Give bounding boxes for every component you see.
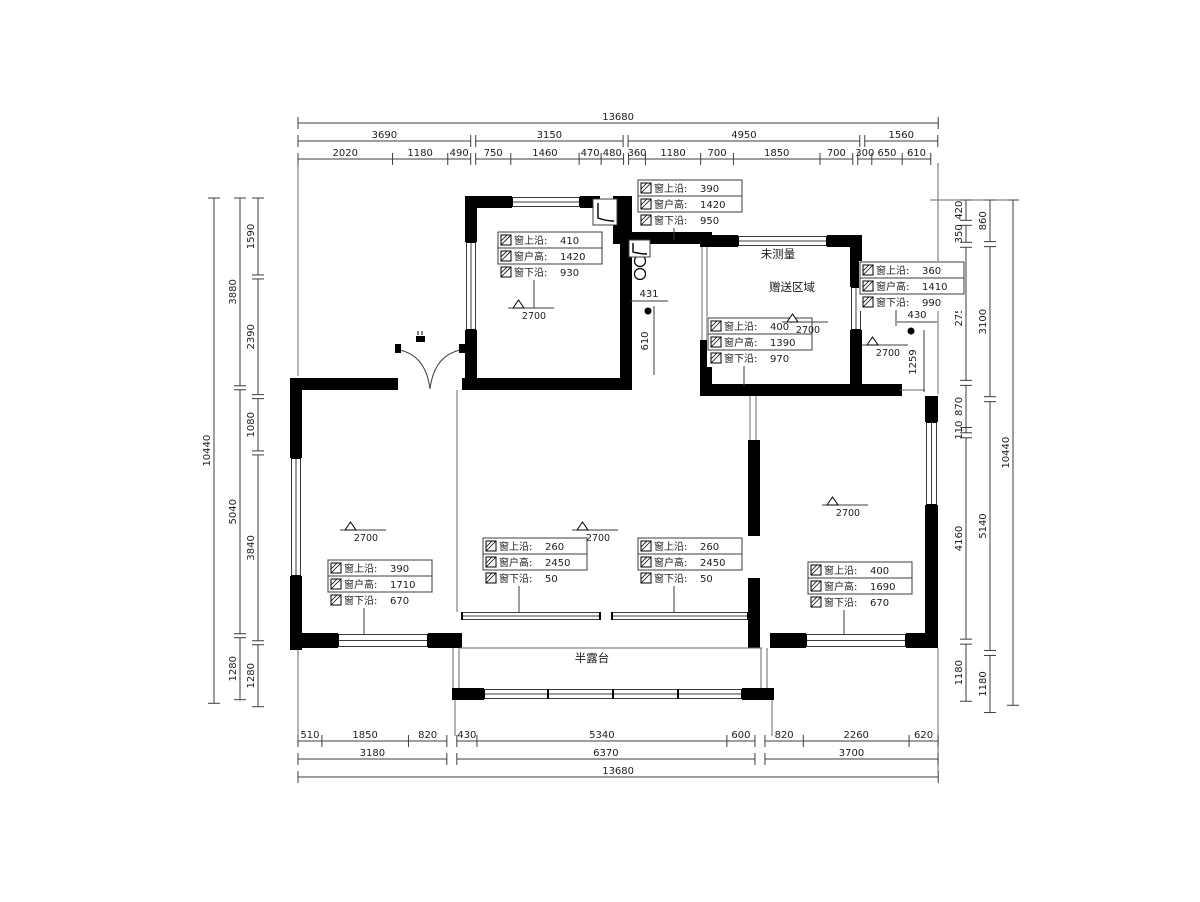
dimension-label: 1180 <box>660 148 685 159</box>
dimension-label: 5040 <box>228 499 239 524</box>
misc-dimension-label: 610 <box>640 331 651 350</box>
dimension-label: 600 <box>731 730 750 741</box>
annotation-label: 窗户高: <box>654 198 687 211</box>
wall-segment <box>700 384 862 396</box>
height-marker-triangle-icon <box>513 300 524 308</box>
window-annotation-win-left-room: 窗上沿: 390窗户高: 1710窗下沿: 670 <box>327 559 433 634</box>
annotation-value: 260 <box>545 542 564 553</box>
height-marker-value: 2700 <box>836 508 860 519</box>
annotation-label: 窗下沿: <box>344 594 377 607</box>
dimension-chain-top: 1368036903150495015602020118049075014604… <box>298 112 938 165</box>
dimension-chain-left: 1044038805040128015902390108038401280 <box>202 198 264 707</box>
dimension-label: 350 <box>954 224 965 243</box>
annotation-label: 窗上沿: <box>824 564 857 577</box>
annotation-value: 50 <box>700 574 713 585</box>
dimension-label: 490 <box>450 148 469 159</box>
dimension-label: 820 <box>775 730 794 741</box>
dimension-label: 1080 <box>246 412 257 437</box>
dimension-label: 3880 <box>228 279 239 304</box>
misc-dimension-label: 431 <box>639 289 658 300</box>
dimension-label: 3100 <box>978 309 989 334</box>
window-band <box>291 458 301 576</box>
annotation-label: 窗户高: <box>344 578 377 591</box>
dimension-label: 1560 <box>889 130 914 141</box>
height-marker-value: 2700 <box>796 325 820 336</box>
annotation-label: 窗上沿: <box>724 320 757 333</box>
wall-segment <box>290 378 302 458</box>
annotation-value: 1410 <box>922 282 947 293</box>
door-leaf <box>395 344 401 353</box>
dimension-label: 6370 <box>593 748 618 759</box>
height-marker: 2700 <box>508 300 554 322</box>
annotation-label: 窗上沿: <box>876 264 909 277</box>
dimension-label: 1180 <box>407 148 432 159</box>
annotation-value: 970 <box>770 354 789 365</box>
annotation-bg <box>327 559 433 609</box>
dimension-label: 420 <box>954 201 965 220</box>
window-band <box>612 612 748 620</box>
dimension-label: 10440 <box>1001 437 1012 469</box>
dimension-label: 4160 <box>954 526 965 551</box>
door-closer-icon <box>416 336 425 342</box>
window-annotation-win-room-a: 窗上沿: 410窗户高: 1420窗下沿: 930 <box>497 231 603 308</box>
wall-segment <box>700 235 738 247</box>
dimension-label: 700 <box>707 148 726 159</box>
dimension-label: 2260 <box>843 730 868 741</box>
dimension-label: 3150 <box>537 130 562 141</box>
dimension-label: 2390 <box>246 324 257 349</box>
wall-segment <box>613 232 712 244</box>
annotation-label: 窗上沿: <box>514 234 547 247</box>
wall-segment <box>465 196 477 242</box>
height-marker-value: 2700 <box>522 311 546 322</box>
annotation-bg <box>637 537 743 587</box>
window-band <box>338 634 428 647</box>
window-band <box>462 612 600 620</box>
height-marker: 2700 <box>862 337 908 359</box>
dimension-label: 1180 <box>954 660 965 685</box>
annotation-label: 窗户高: <box>724 336 757 349</box>
wall-segment <box>620 244 632 378</box>
dimension-label: 1850 <box>764 148 789 159</box>
annotation-label: 窗上沿: <box>499 540 532 553</box>
annotation-value: 930 <box>560 268 579 279</box>
annotation-bg <box>482 537 588 587</box>
window-annotation-win-right-room: 窗上沿: 400窗户高: 1690窗下沿: 670 <box>807 561 913 634</box>
door-leaf <box>459 344 465 353</box>
window-band <box>806 634 906 647</box>
annotation-label: 窗户高: <box>499 556 532 569</box>
dimension-label: 1280 <box>228 656 239 681</box>
wall-segment <box>462 378 632 390</box>
floor-plan-page: 1368036903150495015602020118049075014604… <box>0 0 1200 902</box>
wall-segment <box>290 633 338 648</box>
annotation-bg <box>859 261 965 311</box>
floor-plan-drawing: 1368036903150495015602020118049075014604… <box>0 0 1200 902</box>
height-marker-value: 2700 <box>876 348 900 359</box>
walls-and-openings <box>290 163 1016 772</box>
height-marker-value: 2700 <box>586 533 610 544</box>
annotation-label: 窗上沿: <box>344 562 377 575</box>
annotation-label: 窗下沿: <box>499 572 532 585</box>
height-marker-triangle-icon <box>867 337 878 345</box>
dimension-label: 13680 <box>602 766 634 777</box>
dimension-label: 3700 <box>839 748 864 759</box>
room-label: 未测量 <box>761 247 796 261</box>
annotation-bg <box>637 179 743 229</box>
dimension-label: 1180 <box>978 671 989 696</box>
height-marker-triangle-icon <box>577 522 588 530</box>
wall-segment <box>925 396 938 422</box>
window-band <box>484 689 742 699</box>
dimension-label: 650 <box>877 148 896 159</box>
dimension-label: 10440 <box>202 435 213 467</box>
wall-segment <box>770 633 806 648</box>
leader-dot <box>908 328 915 335</box>
height-marker: 2700 <box>340 522 386 544</box>
wall-segment <box>748 578 760 648</box>
dimension-label: 700 <box>827 148 846 159</box>
annotation-label: 窗户高: <box>876 280 909 293</box>
entry-double-door <box>395 344 465 389</box>
annotation-value: 360 <box>922 266 941 277</box>
annotation-label: 窗下沿: <box>824 596 857 609</box>
dimension-label: 3840 <box>246 535 257 560</box>
dimension-label: 110 <box>954 421 965 440</box>
annotation-value: 950 <box>700 216 719 227</box>
annotation-value: 1710 <box>390 580 415 591</box>
pipe-circle-icon <box>635 269 646 280</box>
wall-segment <box>850 330 862 396</box>
annotation-value: 1390 <box>770 338 795 349</box>
door-swing-arc <box>430 350 460 389</box>
dimension-label: 820 <box>418 730 437 741</box>
annotation-value: 670 <box>390 596 409 607</box>
annotation-label: 窗下沿: <box>654 214 687 227</box>
annotation-label: 窗户高: <box>514 250 547 263</box>
annotation-label: 窗下沿: <box>876 296 909 309</box>
dimension-label: 1850 <box>352 730 377 741</box>
room-label: 赠送区域 <box>769 280 815 294</box>
annotation-label: 窗上沿: <box>654 182 687 195</box>
dimension-label: 13680 <box>602 112 634 123</box>
annotation-value: 410 <box>560 236 579 247</box>
annotation-value: 1420 <box>560 252 585 263</box>
annotation-value: 400 <box>870 566 889 577</box>
dimension-label: 750 <box>484 148 503 159</box>
leader-dot <box>645 308 652 315</box>
corner-bracket-icon <box>593 199 617 225</box>
window-band <box>738 236 827 246</box>
height-marker-triangle-icon <box>827 497 838 505</box>
annotation-value: 670 <box>870 598 889 609</box>
dimension-label: 510 <box>300 730 319 741</box>
door-swing-arc <box>400 350 430 389</box>
height-marker-triangle-icon <box>345 522 356 530</box>
misc-dimension-label: 430 <box>907 310 926 321</box>
dimension-label: 3690 <box>372 130 397 141</box>
annotation-value: 260 <box>700 542 719 553</box>
annotation-value: 390 <box>700 184 719 195</box>
annotation-label: 窗下沿: <box>724 352 757 365</box>
annotation-value: 990 <box>922 298 941 309</box>
dimension-label: 870 <box>954 397 965 416</box>
annotation-value: 2450 <box>700 558 725 569</box>
height-marker-value: 2700 <box>354 533 378 544</box>
wall-segment <box>906 633 938 648</box>
window-annotation-win-living-right: 窗上沿: 260窗户高: 2450窗下沿: 50 <box>637 537 743 612</box>
window-band <box>466 242 476 330</box>
annotation-value: 390 <box>390 564 409 575</box>
dimension-chain-bottom: 5101850820430534060082022606203180637037… <box>298 730 938 783</box>
dimension-label: 5140 <box>978 513 989 538</box>
annotation-bg <box>497 231 603 281</box>
annotation-label: 窗户高: <box>824 580 857 593</box>
wall-segment <box>452 688 484 700</box>
dimension-label: 430 <box>457 730 476 741</box>
annotation-value: 1690 <box>870 582 895 593</box>
dimension-label: 4950 <box>731 130 756 141</box>
wall-segment <box>748 440 760 536</box>
window-band <box>926 422 937 505</box>
window-band <box>512 197 580 207</box>
corner-bracket-icon <box>629 240 650 257</box>
annotation-label: 窗上沿: <box>654 540 687 553</box>
annotation-label: 窗下沿: <box>514 266 547 279</box>
annotation-bg <box>807 561 913 611</box>
dimension-label: 610 <box>907 148 926 159</box>
dimension-label: 2020 <box>333 148 358 159</box>
dimension-label: 5340 <box>589 730 614 741</box>
annotation-label: 窗户高: <box>654 556 687 569</box>
wall-segment <box>302 378 398 390</box>
wall-segment <box>862 384 902 396</box>
room-label: 半露台 <box>575 651 610 665</box>
annotation-value: 1420 <box>700 200 725 211</box>
dimension-label: 1590 <box>246 224 257 249</box>
annotation-value: 50 <box>545 574 558 585</box>
dimension-label: 1460 <box>532 148 557 159</box>
height-marker: 2700 <box>822 497 868 519</box>
dimension-label: 860 <box>978 211 989 230</box>
misc-dimension-label: 1259 <box>908 349 919 374</box>
window-annotation-win-living-left: 窗上沿: 260窗户高: 2450窗下沿: 50 <box>482 537 588 612</box>
wall-segment <box>428 633 462 648</box>
dimension-label: 1280 <box>246 663 257 688</box>
dimension-label: 620 <box>914 730 933 741</box>
dimension-label: 3180 <box>360 748 385 759</box>
annotation-value: 2450 <box>545 558 570 569</box>
dimension-label: 360 <box>627 148 646 159</box>
wall-segment <box>925 505 938 635</box>
annotation-label: 窗下沿: <box>654 572 687 585</box>
window-annotation-win-hall-top: 窗上沿: 390窗户高: 1420窗下沿: 950 <box>637 179 743 240</box>
dimension-label: 470 <box>581 148 600 159</box>
wall-segment <box>742 688 774 700</box>
annotation-value: 400 <box>770 322 789 333</box>
dimension-label: 480 <box>603 148 622 159</box>
